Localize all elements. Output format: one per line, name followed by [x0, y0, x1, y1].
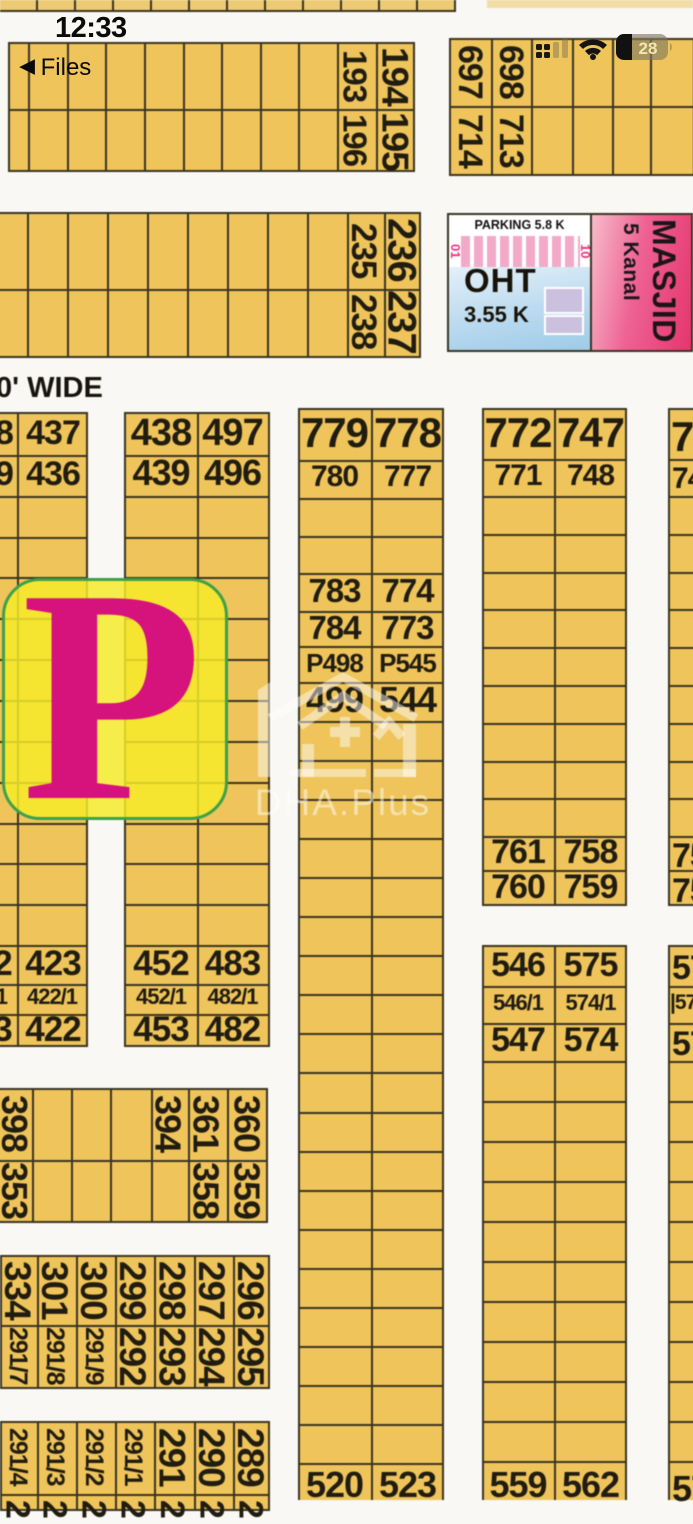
svg-text:28: 28	[639, 39, 658, 58]
